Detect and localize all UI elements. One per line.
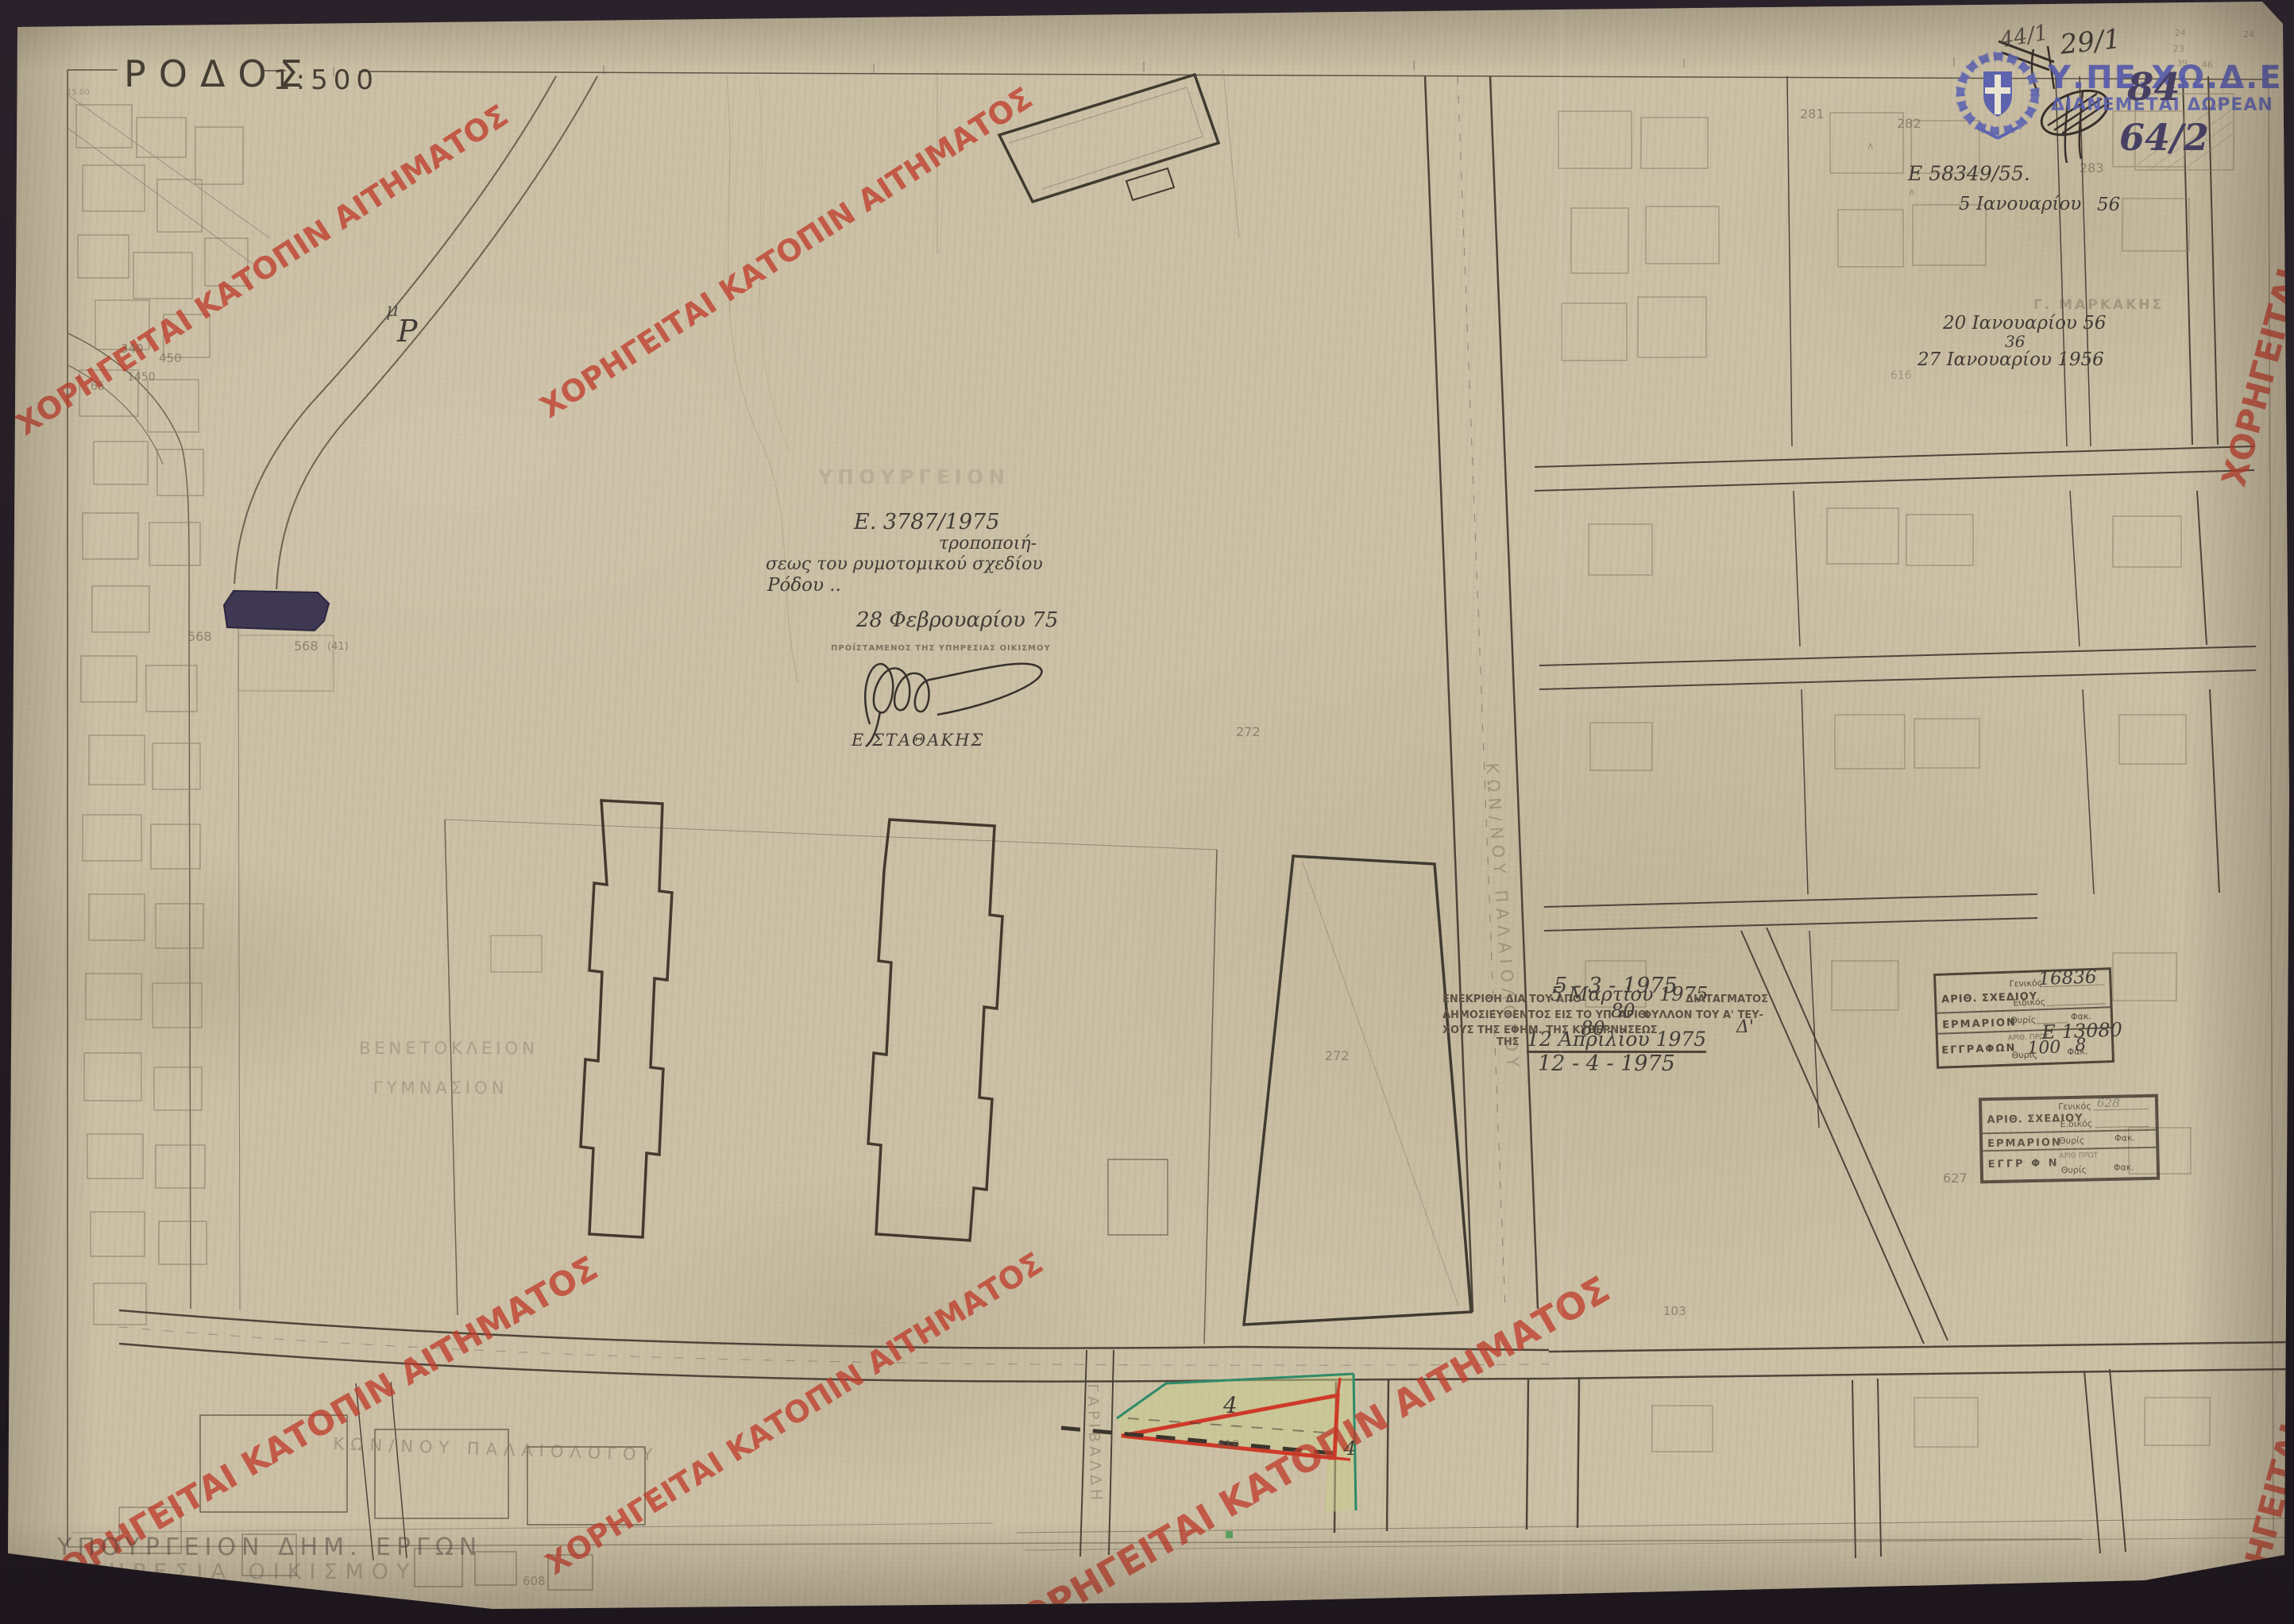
approval-correction: Δ'	[1736, 1019, 1754, 1036]
note-line4: Ρόδου ..	[767, 577, 841, 595]
corner-num: 39	[2176, 59, 2188, 68]
plot-272a: 272	[1236, 726, 1261, 739]
ref-e58349: Ε 58349/55.	[1908, 164, 2030, 183]
office-stamp: ΠΡΟΪΣΤΑΜΕΝΟΣ ΤΗΣ ΥΠΗΡΕΣΙΑΣ ΟΙΚΙΣΜΟΥ	[831, 645, 1051, 653]
num-36: 36	[2005, 334, 2025, 349]
hand-4a: 4	[1223, 1394, 1238, 1417]
corner-num: 24	[2175, 29, 2186, 37]
street-garibaldi: ΓΑΡΙΒΑΛΔΗ	[1084, 1383, 1103, 1505]
hand-64-2: 64/2	[2119, 119, 2209, 156]
date-jan5-year: 56	[2097, 196, 2120, 214]
plot-340: 340	[121, 343, 144, 355]
watermark-text: ΧΟΡΗΓΕΙΤΑΙ	[2217, 264, 2294, 489]
footer-service: ΥΠΗΡΕΣΙΑ ΟΙΚΙΣΜΟΥ	[64, 1561, 418, 1583]
note-ref-e3787: Ε. 3787/1975	[854, 511, 999, 533]
hand-84: 84	[2127, 68, 2180, 106]
street-palaiologou-h: ΚΩΝ/ΝΟΥ ΠΑΛΑΙΟΛΟΓΟΥ	[333, 1436, 658, 1464]
frame-measure: 15.00	[67, 89, 90, 97]
watermark-text: ΧΟΡΗΓΕΙΤΑΙ ΚΑΤΟΠΙΝ ΑΙΤΗΜΑΤΟΣ	[541, 1248, 1048, 1580]
date-jan20: 20 Ιανουαρίου 56	[1943, 314, 2106, 333]
annotation-layer: ΧΟΡΗΓΕΙΤΑΙ ΚΑΤΟΠΙΝ ΑΙΤΗΜΑΤΟΣΧΟΡΗΓΕΙΤΑΙ Κ…	[0, 0, 2294, 1624]
plot-608: 608	[523, 1576, 546, 1587]
shelter-mark: ∧	[1908, 187, 1916, 198]
watermark-text: ΧΟΡΗΓΕΙΤΑΙ ΚΑΤΟΠΙΝ ΑΙΤΗΜΑΤΟΣ	[11, 100, 513, 441]
plot-281: 281	[1800, 108, 1825, 121]
watermark-text: ΧΟΡΗΓΕΙΤΑΙ	[2220, 1420, 2294, 1624]
corner-num: 24	[2243, 30, 2254, 39]
hand-29-1: 29/1	[2059, 25, 2122, 59]
footer-ministry: ΥΠΟΥΡΓΕΙΟΝ ΔΗΜ. ΕΡΓΩΝ	[57, 1536, 482, 1560]
corner-num: 23	[2173, 44, 2184, 53]
hand-rho: Ρ	[397, 316, 418, 346]
fak-8: 8	[2075, 1037, 2087, 1055]
approval-l4-hand: 12 Απριλίου 1975	[1527, 1029, 1706, 1053]
school-name-1: ΒΕΝΕΤΟΚΛΕΙΟΝ	[359, 1040, 539, 1057]
shelter-mark: ∧	[1867, 141, 1875, 152]
scanned-map-document: ΡΟΔΟΣ 1:500 Υ.ΠΕ.ΧΩ.Δ.Ε. ΔΙΑΝΕΜΕΤΑΙ ΔΩΡΕ…	[0, 0, 2294, 1624]
signatory-name: Ε.ΣΤΑΘΑΚΗΣ	[852, 732, 984, 749]
date-jan5: 5 Ιανουαρίου	[1959, 195, 2081, 214]
corner-num: 46	[2202, 60, 2213, 69]
plot-568a: 568	[187, 631, 212, 643]
plot-283: 283	[2080, 162, 2104, 175]
paper-sheet: ΡΟΔΟΣ 1:500 Υ.ΠΕ.ΧΩ.Δ.Ε. ΔΙΑΝΕΜΕΤΑΙ ΔΩΡΕ…	[0, 0, 2294, 1624]
approval-l1b: ΔΙΑΤΑΓΜΑΤΟΣ	[1686, 994, 1768, 1005]
plot-627: 627	[1943, 1172, 1968, 1185]
approval-l2-hand: 80	[1611, 1001, 1636, 1020]
plot-103: 103	[1663, 1306, 1686, 1317]
plan-number-2: 628	[2097, 1097, 2120, 1109]
note-date: 28 Φεβρουαρίου 75	[856, 610, 1058, 631]
hand-44-1: 44/1	[1999, 21, 2049, 51]
note-line2: τροποποιή-	[939, 535, 1037, 553]
plot-619: 619	[1217, 1439, 1240, 1451]
plot-450: 450	[159, 353, 182, 365]
date-jan27: 27 Ιανουαρίου 1956	[1917, 351, 2104, 369]
approval-hand-date2: 12 - 4 - 1975	[1538, 1053, 1675, 1074]
thyris-100: 100	[2027, 1040, 2061, 1058]
plot-568b: 568	[294, 640, 319, 653]
school-name-2: ΓΥΜΝΑΣΙΟΝ	[373, 1080, 508, 1097]
plot-616: 616	[1890, 370, 1912, 381]
plan-number: 16836	[2038, 968, 2097, 989]
faint-name-stamp: Γ. ΜΑΡΚΑΚΗΣ	[2033, 299, 2164, 312]
hand-4b: 4	[1344, 1439, 1356, 1458]
watermark-text: ΧΟΡΗΓΕΙΤΑΙ ΚΑΤΟΠΙΝ ΑΙΤΗΜΑΤΟΣ	[990, 1270, 1615, 1624]
note-line3: σεως του ρυμοτομικού σχεδίου	[766, 556, 1043, 573]
ghost-bleedthrough: ΥΠΟΥΡΓΕΙΟΝ	[818, 467, 1010, 487]
watermark-text: ΧΟΡΗΓΕΙΤΑΙ ΚΑΤΟΠΙΝ ΑΙΤΗΜΑΤΟΣ	[535, 83, 1037, 423]
plot-1450: 1450	[127, 372, 156, 383]
plot-272b: 272	[1325, 1050, 1350, 1063]
plot-282: 282	[1897, 118, 1921, 130]
plot-65: 65	[91, 381, 105, 392]
plot-41: (41)	[327, 642, 349, 652]
